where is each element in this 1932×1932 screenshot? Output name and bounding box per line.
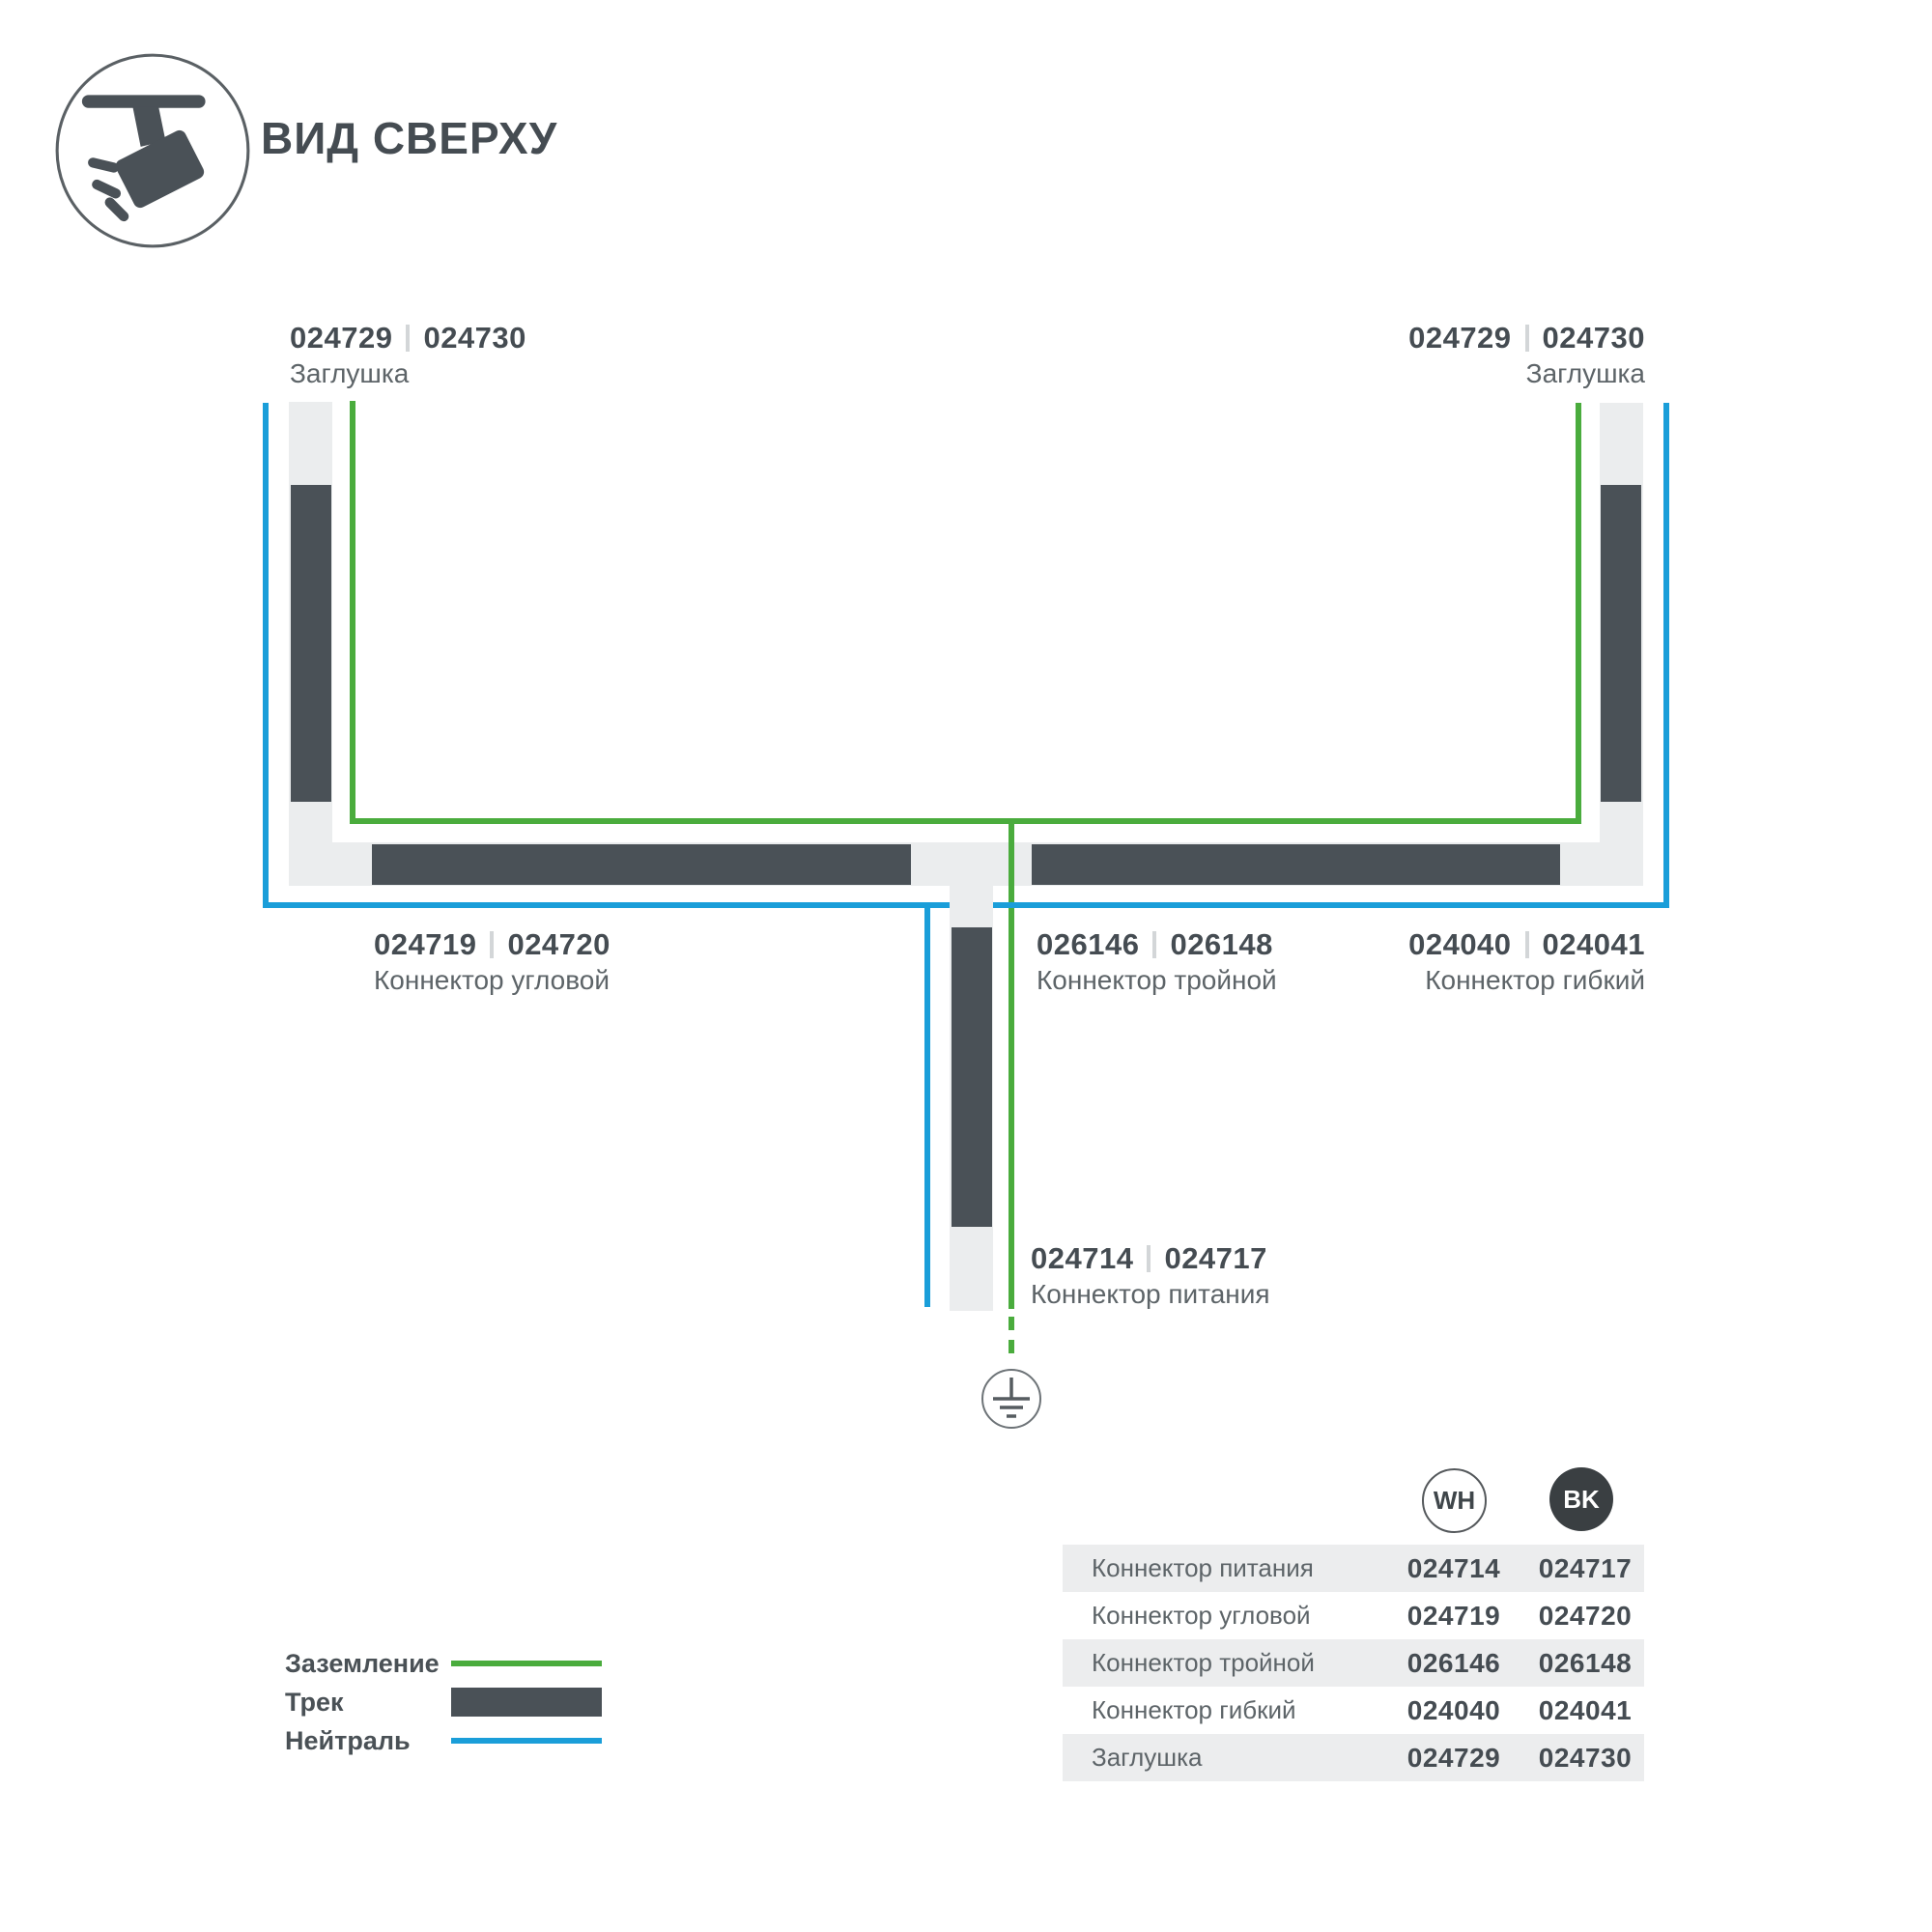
divider [1152, 931, 1156, 958]
label-corner-connector: 024719 024720 Коннектор угловой [374, 927, 611, 996]
divider [490, 931, 494, 958]
ground-line-swatch [451, 1661, 602, 1666]
color-code: WH [1434, 1486, 1475, 1516]
legend: Заземление Трек Нейтраль [285, 1644, 602, 1760]
divider [406, 325, 410, 352]
rail-right-vertical [1601, 485, 1641, 802]
row-bk-code: 024720 [1526, 1601, 1644, 1632]
earth-ground-icon [980, 1368, 1042, 1430]
color-code: BK [1563, 1485, 1600, 1515]
rail-left-vertical [291, 485, 331, 802]
part-name: Коннектор угловой [374, 965, 611, 996]
row-bk-code: 024717 [1526, 1553, 1644, 1584]
part-number-bk: 024730 [423, 321, 526, 355]
legend-item-track: Трек [285, 1683, 602, 1721]
divider [1525, 931, 1529, 958]
row-wh-code: 026146 [1381, 1648, 1526, 1679]
row-name: Коннектор тройной [1063, 1648, 1381, 1678]
label-triple-connector: 026146 026148 Коннектор тройной [1037, 927, 1277, 996]
part-numbers: 024040 024041 [1408, 927, 1645, 962]
row-name: Коннектор питания [1063, 1553, 1381, 1583]
part-name: Коннектор гибкий [1425, 965, 1645, 996]
part-numbers: 024719 024720 [374, 927, 611, 962]
part-numbers: 024729 024730 [290, 321, 526, 355]
part-number-wh: 024719 [374, 927, 476, 962]
row-wh-code: 024040 [1381, 1695, 1526, 1726]
top-view-diagram-page: ВИД СВЕРХУ 024729 0 [0, 0, 1932, 1932]
ground-wire-top [350, 818, 1581, 824]
part-number-wh: 024729 [290, 321, 392, 355]
part-name: Коннектор тройной [1037, 965, 1277, 996]
legend-label: Трек [285, 1688, 451, 1718]
rail-horizontal-left [372, 844, 911, 885]
part-number-bk: 024041 [1543, 927, 1645, 962]
neutral-wire-bottom-right [993, 902, 1669, 908]
label-power-connector: 024714 024717 Коннектор питания [1031, 1241, 1270, 1310]
part-number-bk: 024730 [1543, 321, 1645, 355]
part-name: Заглушка [1526, 358, 1645, 389]
rail-stem [952, 927, 992, 1227]
legend-item-neutral: Нейтраль [285, 1721, 602, 1760]
legend-label: Нейтраль [285, 1726, 451, 1756]
part-number-wh: 026146 [1037, 927, 1139, 962]
track-bar-swatch [451, 1688, 602, 1717]
part-name: Заглушка [290, 358, 526, 389]
neutral-wire-left [263, 403, 269, 908]
neutral-wire-stem [924, 902, 930, 1307]
part-number-bk: 024720 [507, 927, 610, 962]
legend-label: Заземление [285, 1649, 451, 1679]
ground-wire-center [1009, 824, 1014, 1309]
ground-wire-left [350, 401, 355, 824]
row-wh-code: 024719 [1381, 1601, 1526, 1632]
ground-wire-dashed [1009, 1317, 1014, 1359]
row-bk-code: 024041 [1526, 1695, 1644, 1726]
neutral-wire-bottom-left [263, 902, 950, 908]
neutral-line-swatch [451, 1738, 602, 1744]
legend-item-ground: Заземление [285, 1644, 602, 1683]
table-row: Заглушка 024729 024730 [1063, 1734, 1644, 1781]
label-flexible-connector: 024040 024041 Коннектор гибкий [1408, 927, 1645, 996]
divider [1525, 325, 1529, 352]
part-numbers: 024729 024730 [1408, 321, 1645, 355]
table-row: Коннектор питания 024714 024717 [1063, 1545, 1644, 1592]
row-name: Коннектор угловой [1063, 1601, 1381, 1631]
ground-wire-right [1576, 403, 1581, 824]
page-title: ВИД СВЕРХУ [261, 112, 557, 164]
part-numbers: 024714 024717 [1031, 1241, 1270, 1276]
table-row: Коннектор гибкий 024040 024041 [1063, 1687, 1644, 1734]
part-number-wh: 024040 [1408, 927, 1511, 962]
row-bk-code: 026148 [1526, 1648, 1644, 1679]
part-numbers: 026146 026148 [1037, 927, 1277, 962]
track-spotlight-icon [53, 51, 252, 250]
row-name: Коннектор гибкий [1063, 1695, 1381, 1725]
divider [1147, 1245, 1151, 1272]
table-row: Коннектор угловой 024719 024720 [1063, 1592, 1644, 1639]
neutral-wire-right [1663, 403, 1669, 908]
table-row: Коннектор тройной 026146 026148 [1063, 1639, 1644, 1687]
part-number-bk: 024717 [1164, 1241, 1266, 1276]
label-end-cap-left: 024729 024730 Заглушка [290, 321, 526, 389]
part-name: Коннектор питания [1031, 1279, 1270, 1310]
row-wh-code: 024729 [1381, 1743, 1526, 1774]
label-end-cap-right: 024729 024730 Заглушка [1408, 321, 1645, 389]
parts-table: Коннектор питания 024714 024717 Коннекто… [1063, 1545, 1644, 1781]
color-badge-black: BK [1549, 1467, 1613, 1531]
row-name: Заглушка [1063, 1743, 1381, 1773]
part-number-wh: 024714 [1031, 1241, 1133, 1276]
rail-horizontal-right [1032, 844, 1560, 885]
row-bk-code: 024730 [1526, 1743, 1644, 1774]
row-wh-code: 024714 [1381, 1553, 1526, 1584]
part-number-bk: 026148 [1170, 927, 1272, 962]
color-badge-white: WH [1422, 1468, 1487, 1533]
part-number-wh: 024729 [1408, 321, 1511, 355]
